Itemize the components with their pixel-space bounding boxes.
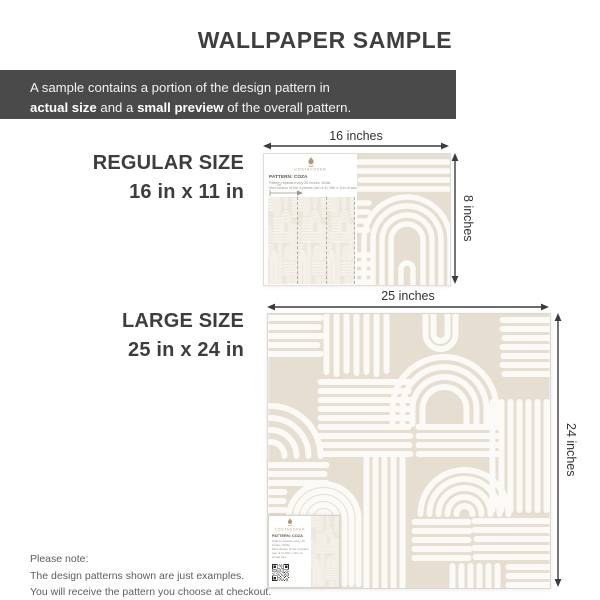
brand-name: COSTACOVER: [264, 168, 357, 172]
banner-line-2: actual size and a small preview of the o…: [30, 98, 456, 118]
banner-text: of the overall pattern.: [224, 100, 352, 115]
large-height-arrow: [553, 313, 563, 587]
panel-divider-dashed: [354, 197, 355, 284]
large-width-dimension-label: 25 inches: [267, 289, 549, 303]
brand-logo-icon: [286, 518, 294, 528]
note-line: The design patterns shown are just examp…: [30, 569, 271, 585]
note-line: You will receive the pattern you choose …: [30, 585, 271, 600]
brand-logo-icon: [306, 157, 316, 168]
ruler-icon: [269, 189, 303, 197]
preview-panel-2: [297, 197, 326, 284]
large-width-arrow: [267, 302, 549, 312]
label-info-panel: COSTACOVER PATTERN: COZA Pattern repeats…: [269, 516, 311, 587]
pattern-mini-preview: [268, 197, 355, 284]
sample-label-card: COSTACOVER PATTERN: COZA Pattern repeats…: [268, 515, 340, 588]
regular-size-dimensions: 16 in x 11 in: [0, 178, 244, 207]
fineprint-line-1: Pattern repeats every 25 inches. White: [272, 540, 309, 548]
banner-bold-small-preview: small preview: [137, 100, 224, 115]
large-size-dimensions: 25 in x 24 in: [0, 336, 244, 365]
regular-size-label: REGULAR SIZE 16 in x 11 in: [0, 149, 244, 207]
large-size-name: LARGE SIZE: [0, 307, 244, 336]
ruler-label: 25": [277, 184, 282, 187]
banner-text: A sample contains a portion of the desig…: [30, 80, 330, 95]
actual-size-pattern-swatch: [357, 154, 450, 285]
preview-panel-3: [326, 197, 355, 284]
banner-text: and a: [97, 100, 137, 115]
texture-preview: [311, 516, 339, 587]
description-banner: A sample contains a portion of the desig…: [0, 70, 456, 119]
sample-info-panel: COSTACOVER PATTERN: COZA Pattern repeats…: [264, 154, 357, 285]
regular-height-arrow: [450, 153, 460, 284]
brand-name: COSTACOVER: [269, 528, 311, 532]
large-sample-card: COSTACOVER PATTERN: COZA Pattern repeats…: [267, 313, 551, 589]
banner-line-1: A sample contains a portion of the desig…: [30, 78, 456, 98]
preview-panel-1: [268, 197, 297, 284]
qr-code: [272, 564, 289, 581]
note-heading: Please note:: [30, 552, 271, 568]
large-size-label: LARGE SIZE 25 in x 24 in: [0, 307, 244, 365]
regular-size-name: REGULAR SIZE: [0, 149, 244, 178]
fineprint-line-2: Mini version of the 4 panels (set of 4) …: [272, 548, 309, 560]
regular-height-dimension-label: 8 inches: [461, 153, 475, 284]
large-height-dimension-label: 24 inches: [564, 313, 578, 587]
page-title: WALLPAPER SAMPLE: [25, 27, 600, 54]
pattern-name: PATTERN: COZA: [272, 534, 303, 538]
label-texture-swatch: [311, 516, 339, 587]
pattern-name: PATTERN: COZA: [269, 174, 307, 179]
panel-divider-dashed: [326, 197, 327, 284]
banner-bold-actual-size: actual size: [30, 100, 97, 115]
wallpaper-sample-infographic: WALLPAPER SAMPLE A sample contains a por…: [0, 0, 600, 600]
footnote: Please note: The design patterns shown a…: [30, 552, 271, 600]
regular-sample-card: COSTACOVER PATTERN: COZA Pattern repeats…: [263, 153, 451, 286]
regular-width-arrow: [263, 141, 449, 151]
panel-divider-dashed: [297, 197, 298, 284]
